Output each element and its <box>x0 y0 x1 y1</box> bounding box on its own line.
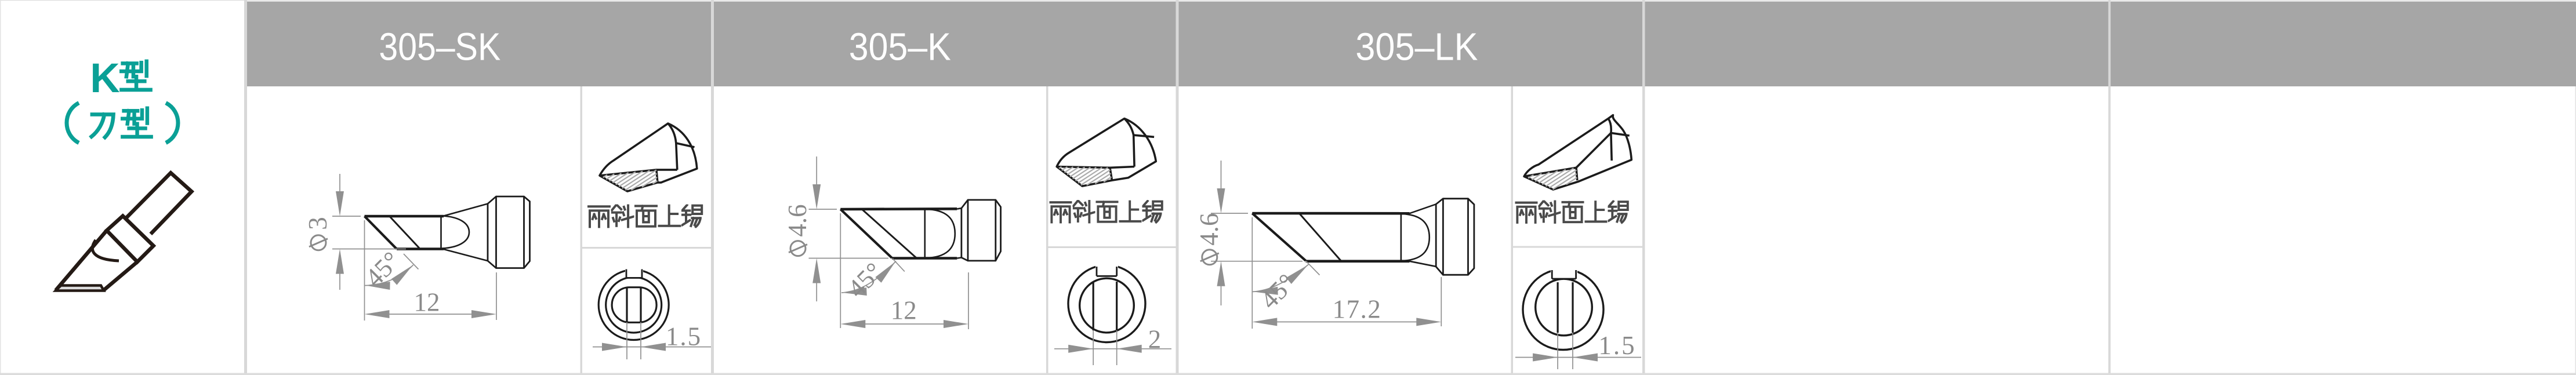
svg-text:4.6: 4.6 <box>783 204 812 236</box>
svg-text:305–SK: 305–SK <box>379 26 500 69</box>
svg-text:12: 12 <box>414 288 440 317</box>
svg-text:305–K: 305–K <box>849 26 951 69</box>
svg-text:1.5: 1.5 <box>666 322 702 351</box>
svg-text:K: K <box>90 56 119 101</box>
svg-text:305–LK: 305–LK <box>1355 26 1478 69</box>
svg-text:4.6: 4.6 <box>1195 213 1224 246</box>
svg-text:2: 2 <box>1148 325 1162 354</box>
svg-text:1.5: 1.5 <box>1598 331 1636 360</box>
svg-text:12: 12 <box>891 296 917 325</box>
svg-text:17.2: 17.2 <box>1333 295 1382 324</box>
svg-text:3: 3 <box>303 217 332 230</box>
